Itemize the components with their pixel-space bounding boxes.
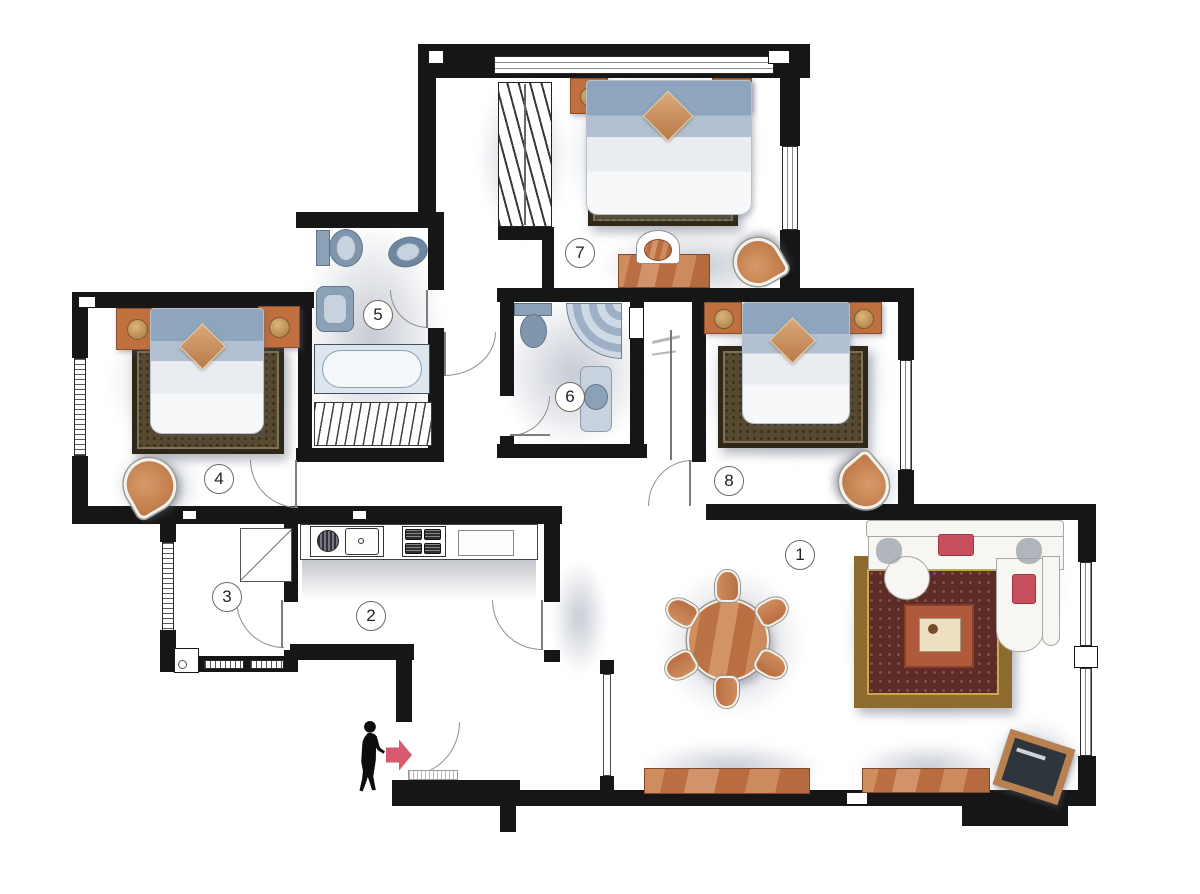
floor-plan: 1 2 3 4 5 6 7 8	[0, 0, 1200, 894]
wall	[905, 504, 1096, 520]
teapot-icon	[928, 624, 938, 634]
nightstand	[258, 306, 300, 348]
red-cushion	[938, 534, 974, 556]
wall	[72, 308, 88, 358]
dining-chair	[714, 676, 739, 708]
burner-icon	[424, 529, 441, 540]
lamp-icon	[269, 317, 290, 338]
window	[204, 660, 244, 669]
wall	[497, 444, 647, 458]
window	[900, 360, 912, 470]
partition-post	[600, 660, 614, 674]
throw-pillow	[1016, 538, 1042, 564]
corner-fixture	[174, 648, 199, 673]
wall	[72, 456, 88, 524]
vanity-bowl	[323, 294, 347, 324]
storage-shelf	[314, 402, 432, 446]
washbasin	[584, 384, 608, 410]
wall	[542, 227, 554, 293]
wall	[296, 448, 444, 462]
sofa-back-right	[1042, 556, 1060, 646]
room-number: 6	[565, 387, 574, 407]
toilet	[520, 314, 547, 348]
room-badge-living: 1	[785, 540, 815, 570]
counter-shading	[302, 558, 536, 600]
room-badge-bathroom-main: 5	[363, 300, 393, 330]
lamp-icon	[714, 309, 734, 329]
burner-icon	[424, 543, 441, 554]
throw-pillow	[876, 538, 902, 564]
room-badge-bedroom-top: 7	[565, 238, 595, 268]
window	[1080, 562, 1092, 646]
sideboard	[862, 768, 990, 793]
wall	[296, 212, 444, 228]
wall-pier	[78, 296, 96, 308]
room-number: 4	[214, 469, 223, 489]
wall	[392, 780, 520, 806]
wall-pier	[182, 510, 197, 520]
screen-partition	[603, 674, 611, 776]
wall-pier	[846, 792, 868, 805]
room-number: 2	[366, 606, 375, 626]
door-arc	[408, 722, 460, 776]
door-threshold	[408, 770, 458, 780]
door-arc	[236, 600, 284, 648]
door-leaf	[689, 460, 691, 506]
wall	[497, 288, 787, 302]
gas-cooktop	[402, 526, 446, 557]
nightstand	[704, 302, 742, 334]
partition-post	[600, 776, 614, 790]
wall	[298, 292, 312, 462]
room-badge-bathroom-second: 6	[555, 382, 585, 412]
door-arc	[648, 460, 692, 506]
dining-chair	[715, 570, 740, 602]
wall	[544, 524, 560, 602]
room-badge-bedroom-right: 8	[714, 466, 744, 496]
clothes-rail	[670, 330, 672, 460]
lamp-icon	[127, 319, 148, 340]
wall	[1078, 504, 1096, 562]
worktop	[458, 530, 514, 556]
door-leaf	[281, 600, 283, 648]
burner-icon	[405, 543, 422, 554]
wall-pier	[352, 510, 367, 520]
corridor-annotation	[652, 335, 680, 344]
toilet-seat	[336, 235, 356, 261]
wall	[898, 302, 914, 360]
window	[162, 542, 174, 632]
room-number: 8	[724, 471, 733, 491]
desk-chair	[636, 230, 680, 264]
wall	[780, 288, 914, 302]
wardrobe-rail	[524, 84, 526, 225]
room-badge-kitchen: 2	[356, 601, 386, 631]
cabinet	[240, 528, 292, 582]
door-leaf	[426, 290, 428, 328]
wall	[962, 806, 1068, 826]
lamp-icon	[854, 309, 874, 329]
corner-fixture-knob	[178, 660, 187, 669]
room-number: 3	[222, 587, 231, 607]
wall	[500, 302, 514, 396]
door-arc	[492, 600, 542, 650]
wall	[418, 78, 436, 218]
room-number: 1	[795, 545, 804, 565]
desk-chair-seat	[644, 239, 672, 261]
room-number: 5	[373, 305, 382, 325]
room-badge-bedroom-left: 4	[204, 464, 234, 494]
faucet-icon	[317, 530, 339, 552]
wall	[500, 806, 516, 832]
door-leaf	[541, 600, 543, 650]
wall	[514, 790, 618, 806]
wall	[780, 78, 800, 146]
window-mullion	[1074, 646, 1098, 668]
wall	[396, 660, 412, 722]
wall	[706, 504, 914, 520]
person-silhouette	[352, 720, 386, 794]
sofa-chaise	[996, 558, 1044, 652]
window	[1080, 668, 1092, 756]
window	[782, 146, 798, 230]
burner-icon	[405, 529, 422, 540]
wall-pier	[768, 50, 790, 64]
wall-niche	[629, 307, 644, 339]
door-arc	[250, 460, 298, 508]
wall	[160, 524, 176, 542]
wall-pier	[428, 50, 444, 64]
coffee-table-tray	[919, 618, 961, 652]
corridor-annotation	[652, 350, 676, 355]
window	[494, 56, 774, 74]
room-number: 7	[575, 243, 584, 263]
shadow-wash	[552, 560, 607, 675]
window	[74, 358, 86, 456]
door-arc	[444, 332, 496, 376]
red-cushion	[1012, 574, 1036, 604]
door-leaf	[295, 460, 297, 508]
wall	[290, 644, 414, 660]
toilet-tank	[316, 230, 330, 266]
door-leaf	[444, 332, 446, 376]
room-badge-utility: 3	[212, 582, 242, 612]
window	[250, 660, 284, 669]
sink-drain	[358, 538, 364, 544]
wall	[428, 212, 444, 290]
sideboard	[644, 768, 810, 794]
door-leaf	[510, 434, 550, 436]
wall	[544, 650, 560, 662]
bathtub-basin	[322, 350, 422, 388]
